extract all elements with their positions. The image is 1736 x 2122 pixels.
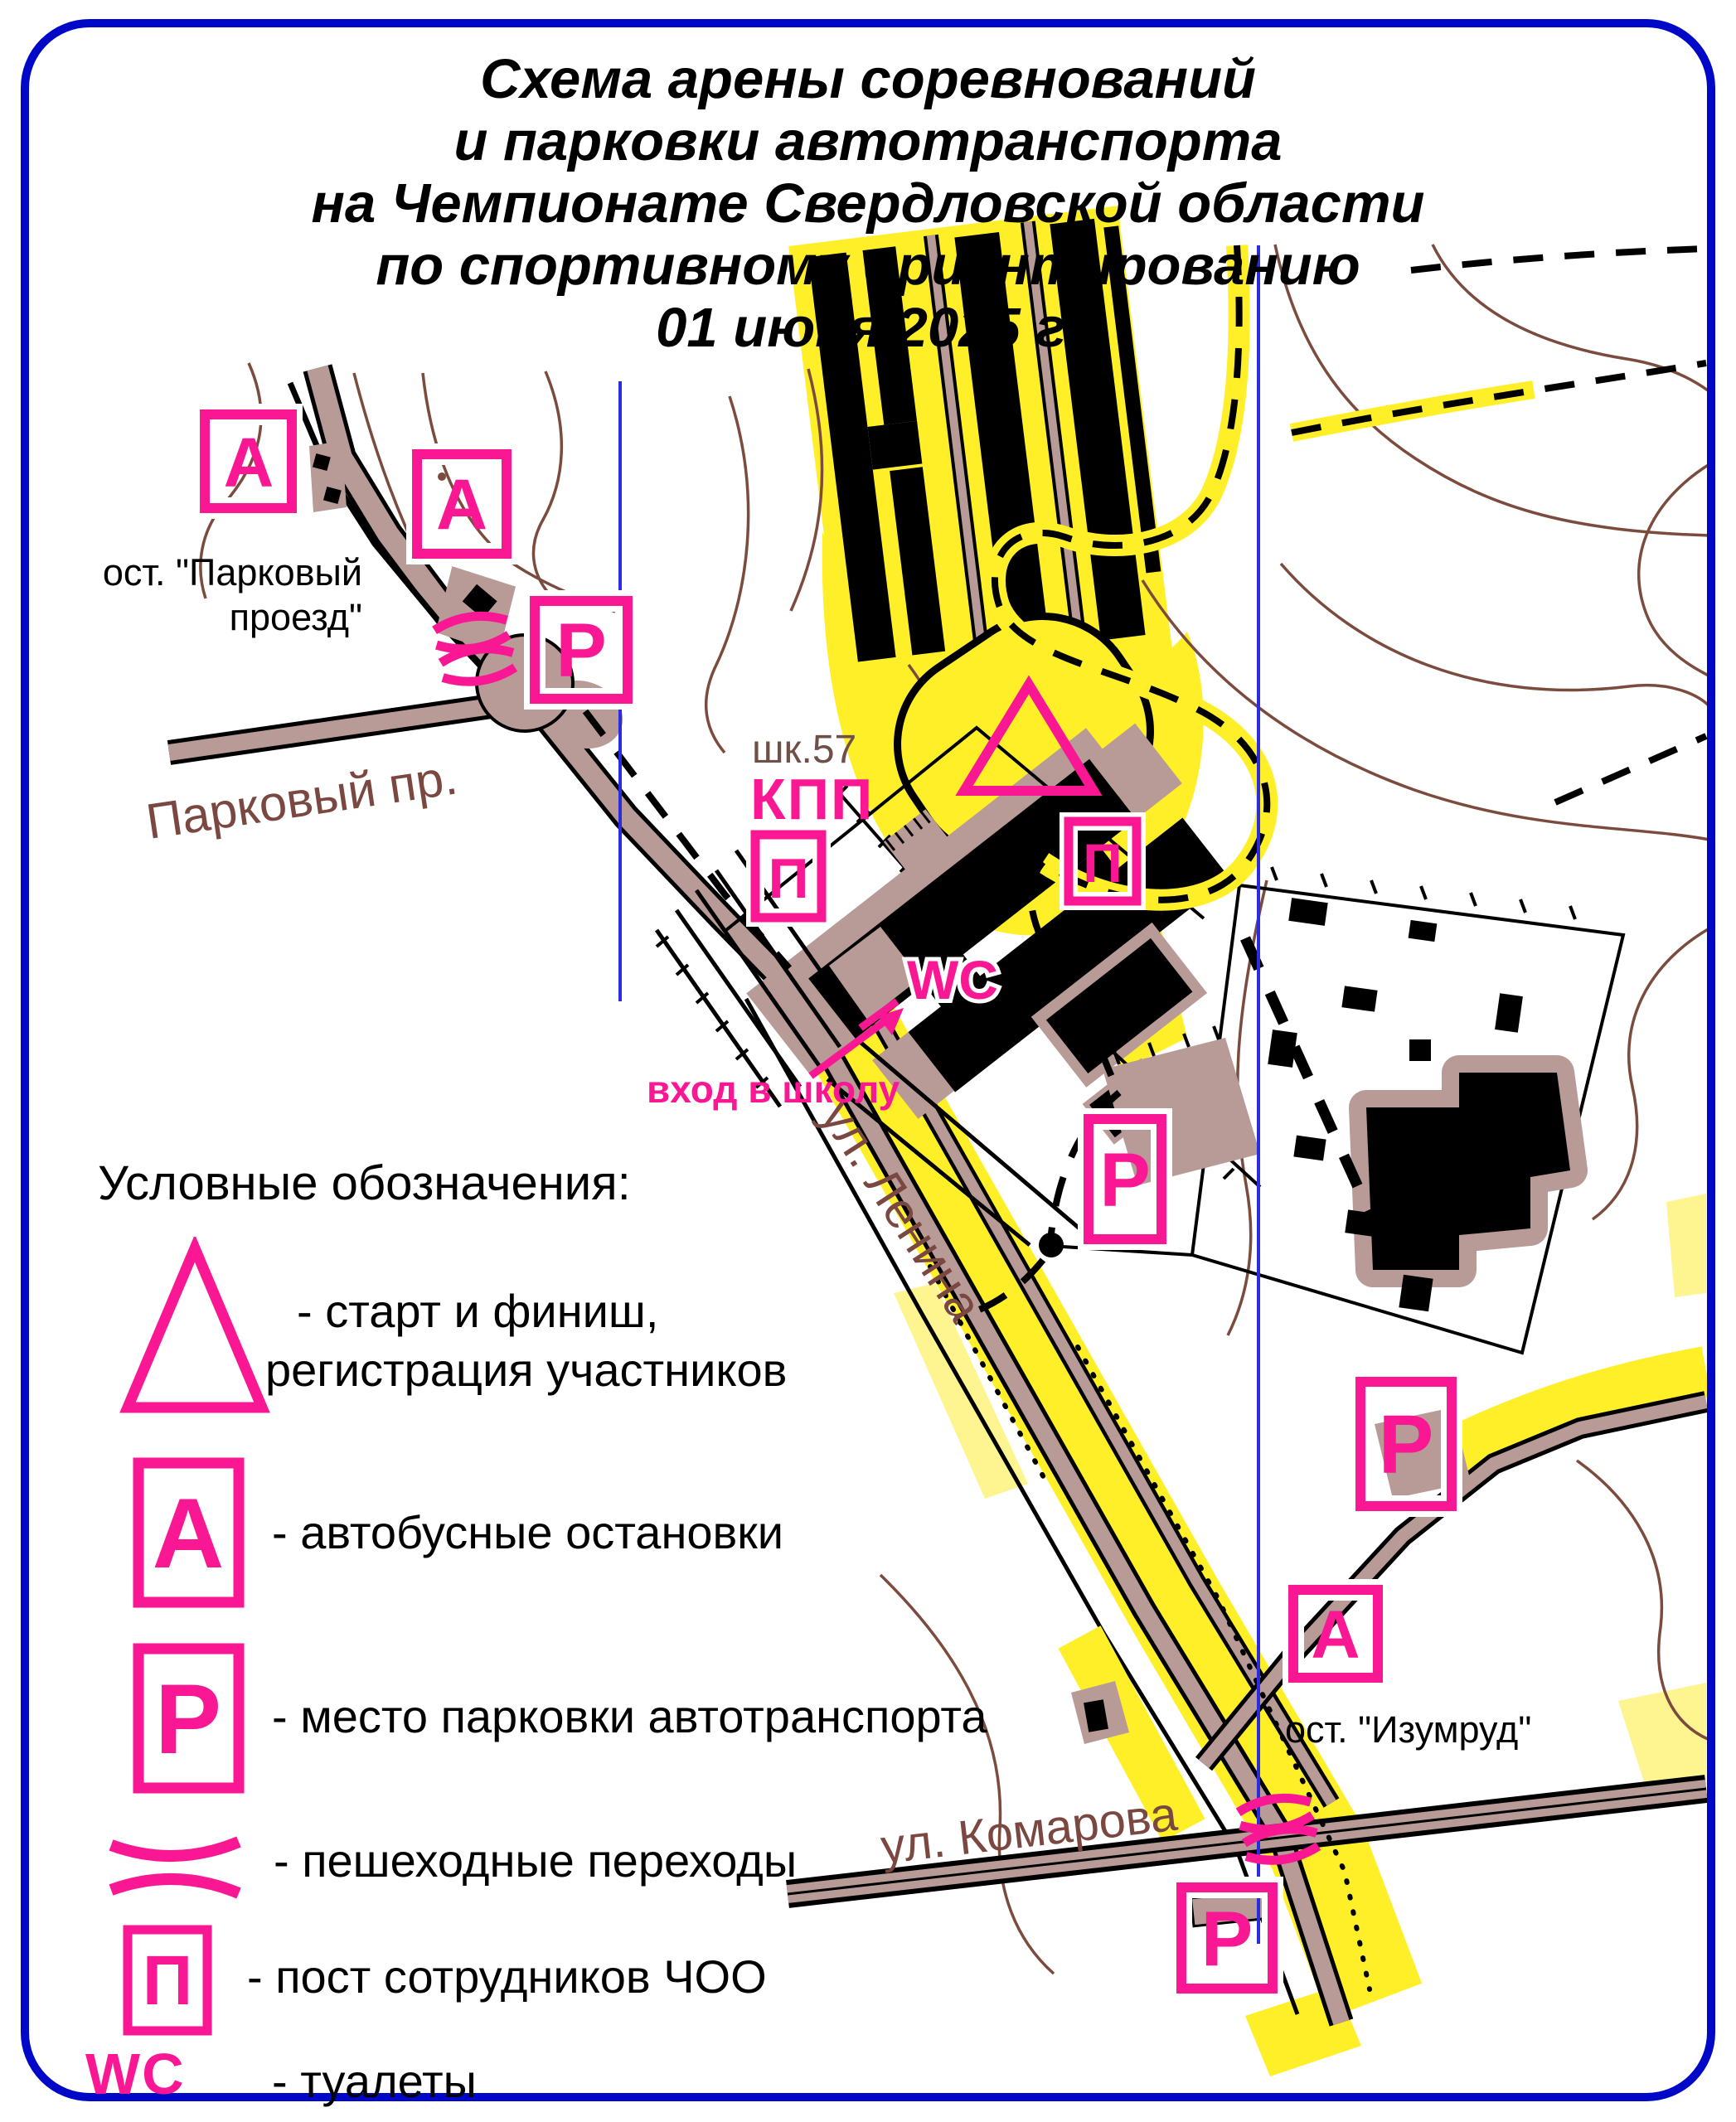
legend-label-start: - старт и финиш, [297,1284,658,1338]
bus-stop-icon: А [133,1457,245,1608]
svg-text:П: П [143,1941,192,2019]
svg-text:П: П [1083,832,1122,894]
svg-text:П: П [769,847,809,910]
bus-stop-marker: А [205,414,292,508]
parking-icon: Р [133,1643,245,1794]
page-title: Схема арены соревнований и парковки авто… [0,48,1736,359]
svg-text:А: А [436,465,487,545]
title-line: на Чемпионате Свердловской области [0,172,1736,235]
security-post-marker: П [755,835,822,918]
pedestrian-crossing-icon [101,1820,249,1913]
wc-label: WC [907,949,998,1010]
legend-label-bus: - автобусные остановки [272,1505,783,1559]
svg-text:Р: Р [555,608,606,693]
school-label: шк.57 [752,728,856,772]
svg-text:А: А [1311,1597,1360,1673]
title-line: и парковки автотранспорта [0,110,1736,172]
legend-label-post: - пост сотрудников ЧОО [247,1950,767,2003]
svg-text:А: А [224,424,274,501]
legend-label-start2: регистрация участников [265,1343,787,1397]
svg-text:Р: Р [1379,1398,1434,1491]
title-line: по спортивному ориентированию [0,235,1736,297]
stop-izumrud-label: ост. "Изумруд" [1285,1708,1531,1751]
svg-text:Р: Р [1201,1895,1254,1982]
bus-stop-marker: А [417,454,507,554]
junction-dot [1039,1233,1064,1257]
svg-text:Р: Р [1099,1138,1150,1223]
toilets-icon: WC [85,2041,186,2107]
stop-parkovy-label: ост. "Парковый [103,551,362,593]
checkpoint-label: КПП [750,767,874,831]
school-entrance-label: вход в школу [647,1068,900,1111]
stop-parkovy-label2: проезд" [230,596,362,638]
svg-text:Р: Р [155,1664,221,1775]
legend-heading: Условные обозначения: [98,1155,631,1211]
street-parkovy-label: Парковый пр. [143,749,461,849]
legend-label-wc: - туалеты [272,2054,477,2108]
security-post-icon: П [123,1925,212,2036]
legend-label-parking: - место парковки автотранспорта [272,1689,987,1743]
legend-label-crossing: - пешеходные переходы [274,1834,797,1887]
title-line: Схема арены соревнований [0,48,1736,110]
start-finish-triangle-icon [116,1237,274,1419]
title-line: 01 июня 2025 г. [0,297,1736,359]
svg-text:А: А [153,1478,225,1589]
